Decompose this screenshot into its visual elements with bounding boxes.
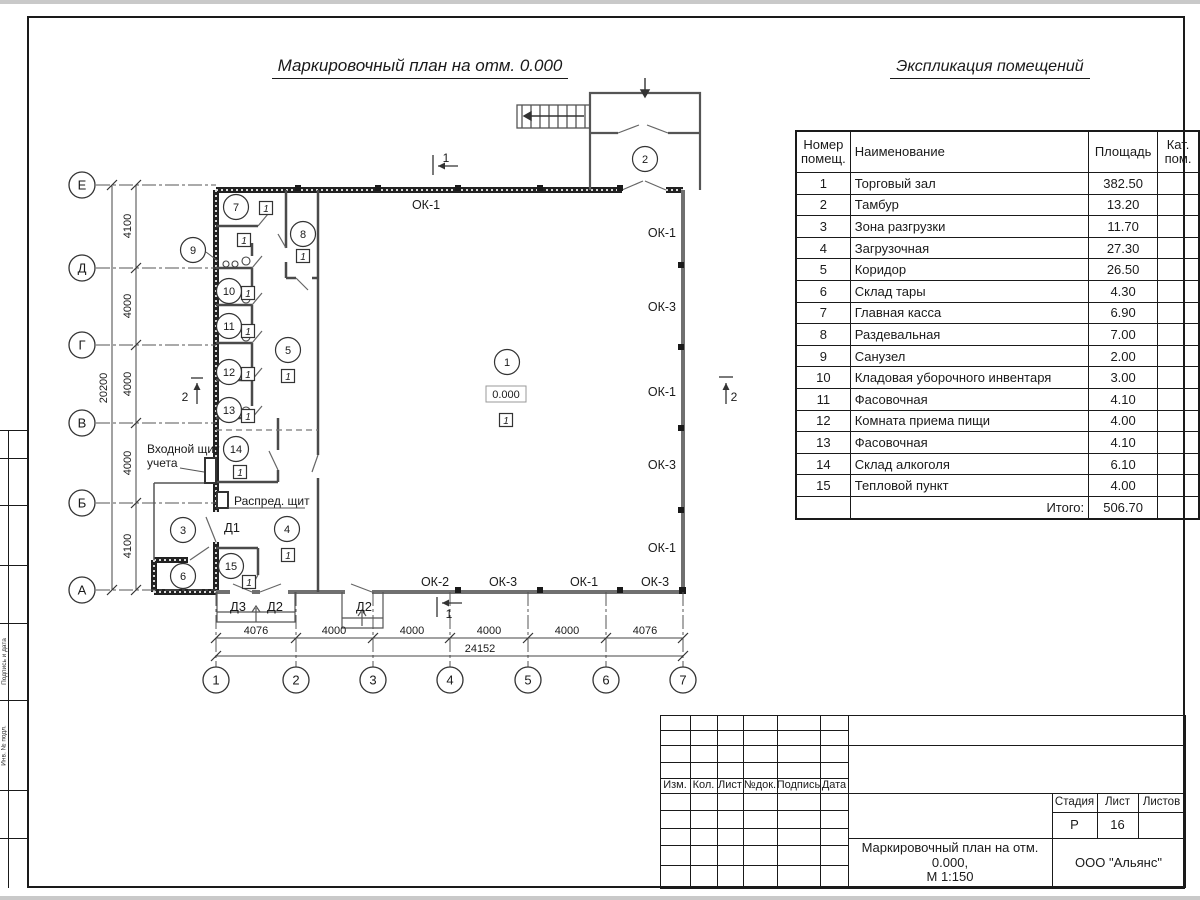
sidestamp-line bbox=[0, 838, 27, 839]
table-cell: 4.10 bbox=[1089, 432, 1158, 454]
table-cell: Тамбур bbox=[850, 194, 1088, 216]
table-cell: 9 bbox=[796, 345, 850, 367]
elevation-mark: 0.000 bbox=[486, 386, 526, 402]
dim-text: 24152 bbox=[465, 643, 496, 655]
table-cell: Торговый зал bbox=[850, 173, 1088, 195]
window-label: ОК-1 bbox=[412, 198, 440, 212]
table-cell bbox=[1158, 345, 1199, 367]
side-stamp: Подпись и датаИнв. № подл. bbox=[0, 16, 27, 888]
section-label: 2 bbox=[731, 390, 738, 404]
titleblock-line bbox=[660, 888, 1185, 889]
window-label: ОК-1 bbox=[648, 541, 676, 555]
axis-label: 4 bbox=[446, 673, 453, 688]
dim-text: 4100 bbox=[122, 214, 134, 238]
section-arrow-icon bbox=[723, 383, 730, 390]
company-name: ООО "Альянс" bbox=[1052, 838, 1185, 888]
titleblock-line bbox=[690, 715, 691, 888]
table-cell bbox=[1158, 237, 1199, 259]
axis-label: 2 bbox=[292, 673, 299, 688]
table-cell bbox=[1158, 324, 1199, 346]
section-label: 1 bbox=[446, 607, 453, 621]
floor-tag: 1 bbox=[503, 416, 509, 427]
table-cell: 4.00 bbox=[1089, 410, 1158, 432]
dim-text: 4100 bbox=[122, 534, 134, 558]
table-row: 11Фасовочная4.10 bbox=[796, 388, 1199, 410]
table-cell: 4.10 bbox=[1089, 388, 1158, 410]
door-leaves bbox=[190, 125, 668, 592]
room-number: 15 bbox=[225, 561, 237, 573]
total-label: Итого: bbox=[850, 496, 1088, 518]
titleblock-line bbox=[717, 715, 718, 888]
table-cell: Тепловой пункт bbox=[850, 475, 1088, 497]
floor-plan: 0.000 ЕДГВБА1234567 41004000400040004100… bbox=[30, 60, 770, 710]
axis-label: А bbox=[78, 583, 87, 598]
col-header-cat: Кат. пом. bbox=[1158, 131, 1199, 173]
table-cell: 26.50 bbox=[1089, 259, 1158, 281]
table-cell: Санузел bbox=[850, 345, 1088, 367]
rev-header: №док. bbox=[743, 778, 777, 793]
table-cell: 4.30 bbox=[1089, 280, 1158, 302]
table-cell: 6.90 bbox=[1089, 302, 1158, 324]
table-cell: 3 bbox=[796, 216, 850, 238]
table-cell bbox=[1158, 432, 1199, 454]
floor-tag: 1 bbox=[237, 468, 243, 479]
window-label: ОК-3 bbox=[489, 575, 517, 589]
section-arrow-icon bbox=[194, 383, 201, 390]
table-cell: 7.00 bbox=[1089, 324, 1158, 346]
door-label: Д2 bbox=[356, 599, 372, 614]
annotation-text: Входной щит bbox=[147, 442, 220, 456]
table-row: 8Раздевальная7.00 bbox=[796, 324, 1199, 346]
window-label: ОК-1 bbox=[648, 385, 676, 399]
table-row: 14Склад алкоголя6.10 bbox=[796, 453, 1199, 475]
title-block: Изм.Кол.Лист№док.ПодписьДатаСтадияЛистЛи… bbox=[660, 715, 1185, 888]
table-cell: 4.00 bbox=[1089, 475, 1158, 497]
dim-text: 4076 bbox=[244, 625, 268, 637]
floor-tag: 1 bbox=[245, 327, 251, 338]
explication-title: Экспликация помещений bbox=[850, 58, 1130, 79]
annotation-text: Распред. щит bbox=[234, 494, 310, 508]
stage-value: Р bbox=[1052, 812, 1097, 838]
room-number: 2 bbox=[642, 154, 648, 166]
room-number: 8 bbox=[300, 229, 306, 241]
table-cell bbox=[1158, 410, 1199, 432]
table-cell bbox=[1158, 259, 1199, 281]
table-cell: 6.10 bbox=[1089, 453, 1158, 475]
table-cell: Загрузочная bbox=[850, 237, 1088, 259]
table-row: 2Тамбур13.20 bbox=[796, 194, 1199, 216]
sheet-label: Лист bbox=[1097, 793, 1138, 812]
table-cell: 14 bbox=[796, 453, 850, 475]
sidestamp-line bbox=[0, 565, 27, 566]
room-number: 6 bbox=[180, 571, 186, 583]
table-cell: 13.20 bbox=[1089, 194, 1158, 216]
window-label: ОК-3 bbox=[648, 300, 676, 314]
table-cell: 6 bbox=[796, 280, 850, 302]
table-cell bbox=[1158, 367, 1199, 389]
explication-table: Номер помещ. Наименование Площадь Кат. п… bbox=[795, 130, 1200, 520]
table-cell: 3.00 bbox=[1089, 367, 1158, 389]
table-cell: Раздевальная bbox=[850, 324, 1088, 346]
sidestamp-line bbox=[0, 458, 27, 459]
table-cell: 8 bbox=[796, 324, 850, 346]
table-header-row: Номер помещ. Наименование Площадь Кат. п… bbox=[796, 131, 1199, 173]
entry-meter-panel bbox=[205, 458, 216, 483]
floor-tag: 1 bbox=[285, 372, 291, 383]
rev-header: Изм. bbox=[660, 778, 690, 793]
table-row: 3Зона разгрузки11.70 bbox=[796, 216, 1199, 238]
window-label: ОК-3 bbox=[648, 458, 676, 472]
table-cell: 13 bbox=[796, 432, 850, 454]
table-cell: 2 bbox=[796, 194, 850, 216]
table-cell: Кладовая уборочного инвентаря bbox=[850, 367, 1088, 389]
table-cell: 11.70 bbox=[1089, 216, 1158, 238]
sheets-value bbox=[1138, 812, 1185, 838]
table-total-row: Итого: 506.70 bbox=[796, 496, 1199, 518]
table-row: 10Кладовая уборочного инвентаря3.00 bbox=[796, 367, 1199, 389]
rev-header: Дата bbox=[820, 778, 848, 793]
table-cell: 4 bbox=[796, 237, 850, 259]
total-value: 506.70 bbox=[1089, 496, 1158, 518]
table-cell bbox=[1158, 302, 1199, 324]
table-cell bbox=[1158, 173, 1199, 195]
room-number: 5 bbox=[285, 345, 291, 357]
room-number: 14 bbox=[230, 444, 242, 456]
axis-label: 5 bbox=[524, 673, 531, 688]
table-cell: 11 bbox=[796, 388, 850, 410]
table-cell: Главная касса bbox=[850, 302, 1088, 324]
window-label: ОК-2 bbox=[421, 575, 449, 589]
sidestamp-label: Инв. № подл. bbox=[0, 700, 9, 790]
stage-label: Стадия bbox=[1052, 793, 1097, 812]
dim-text: 4000 bbox=[122, 294, 134, 318]
titleblock-line bbox=[777, 715, 778, 888]
dim-text: 4000 bbox=[477, 625, 501, 637]
table-cell bbox=[1158, 388, 1199, 410]
table-cell: 5 bbox=[796, 259, 850, 281]
axis-label: Д bbox=[78, 261, 87, 276]
dim-text: 4000 bbox=[122, 372, 134, 396]
door-label: Д3 bbox=[230, 599, 246, 614]
svg-text:0.000: 0.000 bbox=[492, 389, 520, 401]
table-cell: 27.30 bbox=[1089, 237, 1158, 259]
table-cell: 12 bbox=[796, 410, 850, 432]
doc-title: Маркировочный план на отм. 0.000,М 1:150 bbox=[848, 838, 1052, 888]
col-header-number: Номер помещ. bbox=[796, 131, 850, 173]
table-cell: Склад алкоголя bbox=[850, 453, 1088, 475]
floor-tag: 1 bbox=[245, 370, 251, 381]
axis-label: 1 bbox=[212, 673, 219, 688]
table-row: 9Санузел2.00 bbox=[796, 345, 1199, 367]
room-number: 4 bbox=[284, 524, 290, 536]
table-row: 4Загрузочная27.30 bbox=[796, 237, 1199, 259]
table-cell: 10 bbox=[796, 367, 850, 389]
dim-text: 4000 bbox=[555, 625, 579, 637]
room-number: 7 bbox=[233, 202, 239, 214]
table-row: 7Главная касса6.90 bbox=[796, 302, 1199, 324]
table-cell: 1 bbox=[796, 173, 850, 195]
section-label: 1 bbox=[443, 151, 450, 165]
axis-label: Б bbox=[78, 496, 87, 511]
vestibule-walls bbox=[590, 93, 700, 190]
titleblock-line bbox=[1185, 715, 1186, 888]
rev-header: Лист bbox=[717, 778, 743, 793]
rev-header: Подпись bbox=[777, 778, 820, 793]
room-number: 1 bbox=[504, 357, 510, 369]
window-label: ОК-1 bbox=[648, 226, 676, 240]
floor-tag: 1 bbox=[245, 412, 251, 423]
titleblock-line bbox=[743, 715, 744, 888]
floor-tag: 1 bbox=[263, 204, 269, 215]
table-cell: Фасовочная bbox=[850, 432, 1088, 454]
table-row: 6Склад тары4.30 bbox=[796, 280, 1199, 302]
table-cell: Зона разгрузки bbox=[850, 216, 1088, 238]
table-row: 12Комната приема пищи4.00 bbox=[796, 410, 1199, 432]
table-cell: Коридор bbox=[850, 259, 1088, 281]
drawing-sheet: { "page": { "plan_title": "Маркировочный… bbox=[0, 0, 1200, 900]
titleblock-line bbox=[660, 715, 1185, 716]
table-cell: 15 bbox=[796, 475, 850, 497]
sidestamp-line bbox=[0, 430, 27, 431]
section-arrow-icon bbox=[442, 600, 449, 607]
room-number: 9 bbox=[190, 245, 196, 257]
door-label: Д2 bbox=[267, 599, 283, 614]
table-cell: 7 bbox=[796, 302, 850, 324]
dim-text: 4000 bbox=[400, 625, 424, 637]
room-number: 13 bbox=[223, 405, 235, 417]
table-cell: Фасовочная bbox=[850, 388, 1088, 410]
table-cell bbox=[1158, 216, 1199, 238]
floor-tag: 1 bbox=[241, 236, 247, 247]
table-row: 5Коридор26.50 bbox=[796, 259, 1199, 281]
sheets-label: Листов bbox=[1138, 793, 1185, 812]
axis-label: 7 bbox=[679, 673, 686, 688]
table-cell: 2.00 bbox=[1089, 345, 1158, 367]
titleblock-line bbox=[660, 715, 661, 888]
col-header-area: Площадь bbox=[1089, 131, 1158, 173]
table-row: 15Тепловой пункт4.00 bbox=[796, 475, 1199, 497]
room-number: 10 bbox=[223, 286, 235, 298]
floor-tag: 1 bbox=[246, 578, 252, 589]
floor-tag: 1 bbox=[285, 551, 291, 562]
door-label: Д1 bbox=[224, 520, 240, 535]
dim-text: 20200 bbox=[98, 373, 110, 404]
page-top-edge bbox=[0, 0, 1200, 4]
section-label: 2 bbox=[182, 390, 189, 404]
floor-tag: 1 bbox=[245, 289, 251, 300]
table-cell bbox=[1158, 475, 1199, 497]
rev-header: Кол. bbox=[690, 778, 717, 793]
dim-text: 4076 bbox=[633, 625, 657, 637]
floor-tag: 1 bbox=[300, 252, 306, 263]
titleblock-line bbox=[820, 715, 821, 888]
distribution-panel bbox=[217, 492, 228, 508]
window-label: ОК-3 bbox=[641, 575, 669, 589]
col-header-name: Наименование bbox=[850, 131, 1088, 173]
window-label: ОК-1 bbox=[570, 575, 598, 589]
table-cell: Склад тары bbox=[850, 280, 1088, 302]
axis-label: 6 bbox=[602, 673, 609, 688]
table-row: 13Фасовочная4.10 bbox=[796, 432, 1199, 454]
room-number: 11 bbox=[223, 321, 234, 333]
titleblock-line bbox=[660, 745, 1185, 746]
sidestamp-line bbox=[0, 505, 27, 506]
table-row: 1Торговый зал382.50 bbox=[796, 173, 1199, 195]
table-cell: Комната приема пищи bbox=[850, 410, 1088, 432]
sidestamp-label: Подпись и дата bbox=[0, 623, 9, 700]
axis-label: Е bbox=[78, 178, 87, 193]
table-cell bbox=[1158, 453, 1199, 475]
table-cell bbox=[1158, 280, 1199, 302]
entry-arrow-icon bbox=[524, 78, 649, 120]
page-bottom-edge bbox=[0, 896, 1200, 900]
table-cell: 382.50 bbox=[1089, 173, 1158, 195]
annotation-text: учета bbox=[147, 456, 178, 470]
sheet-value: 16 bbox=[1097, 812, 1138, 838]
dim-text: 4000 bbox=[122, 451, 134, 475]
axis-label: Г bbox=[78, 338, 85, 353]
axis-label: 3 bbox=[369, 673, 376, 688]
room-number: 3 bbox=[180, 525, 186, 537]
room-number: 12 bbox=[223, 367, 235, 379]
dim-text: 4000 bbox=[322, 625, 346, 637]
axis-label: В bbox=[78, 416, 87, 431]
table-cell bbox=[1158, 194, 1199, 216]
